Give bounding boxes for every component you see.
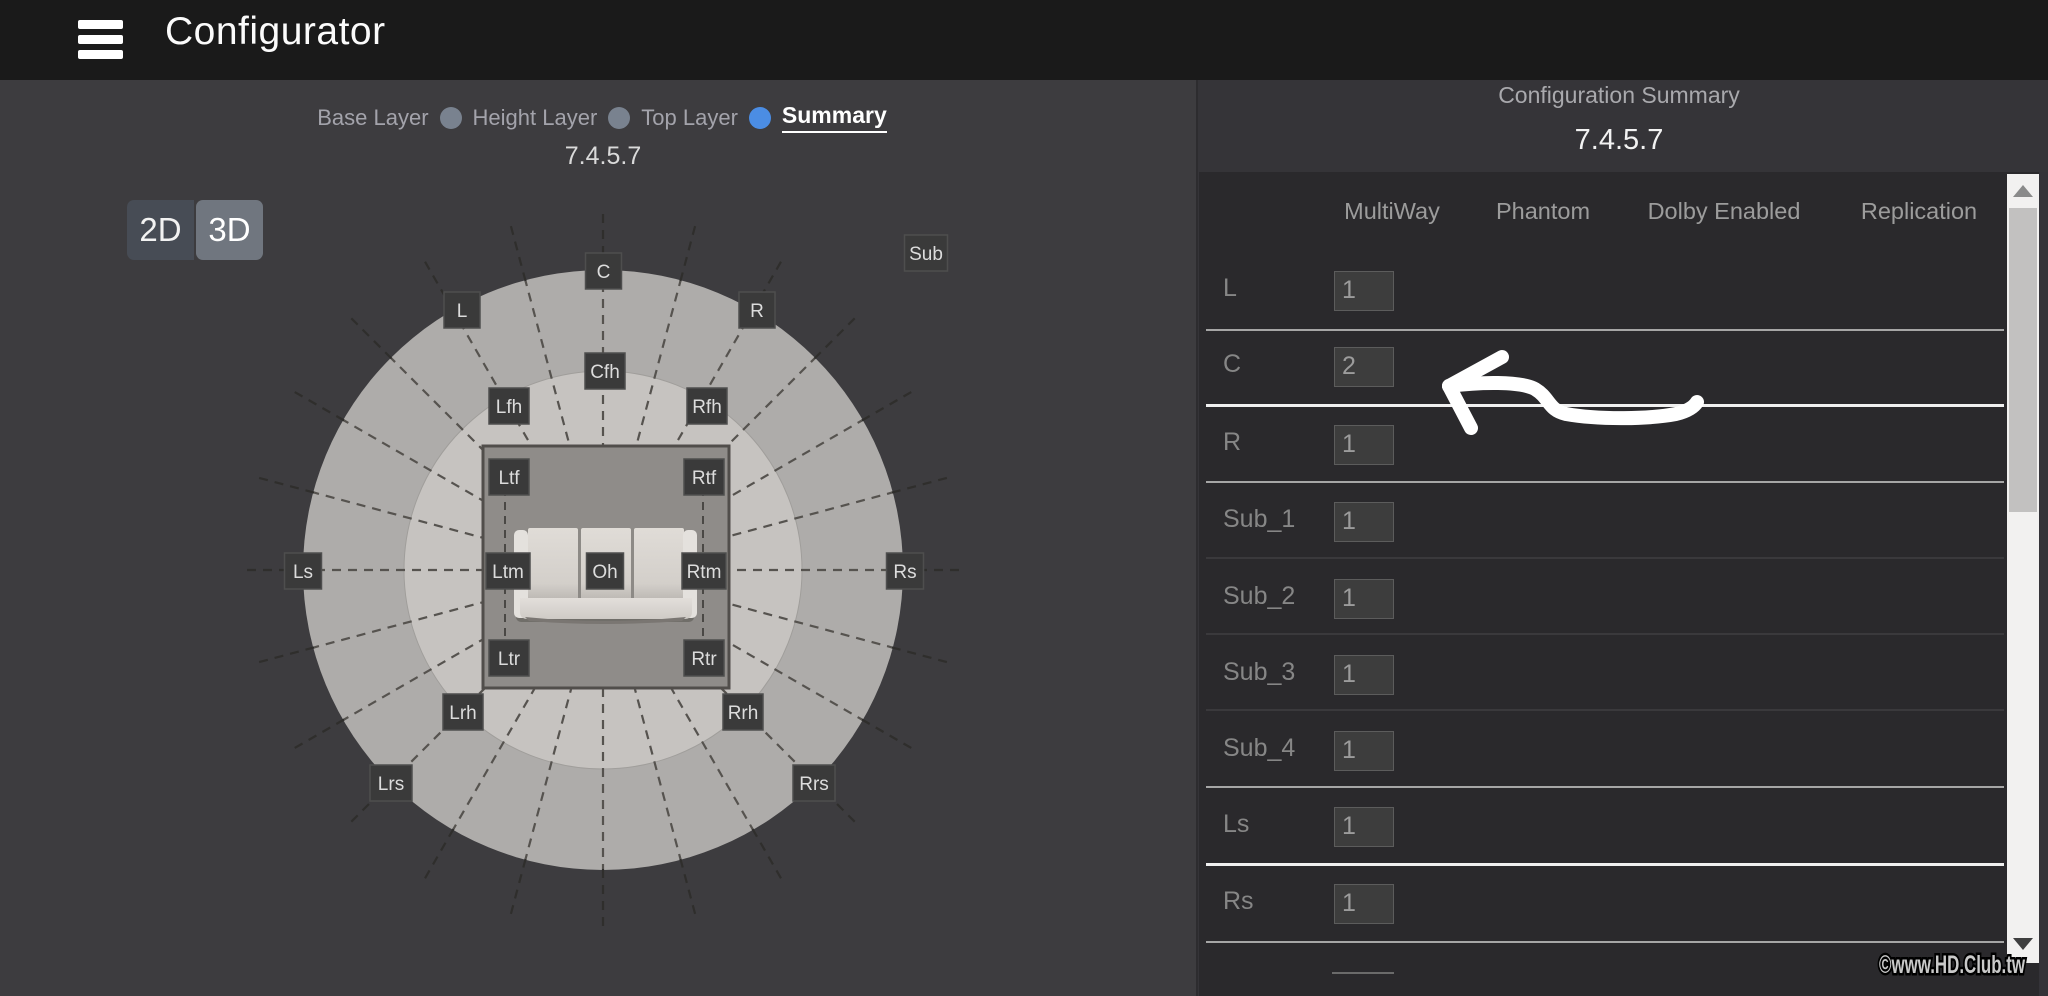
svg-text:©www.HD.Club.tw: ©www.HD.Club.tw: [1879, 951, 2025, 979]
svg-text:Ltr: Ltr: [498, 649, 521, 670]
svg-text:Ltm: Ltm: [492, 562, 524, 583]
svg-text:Lrs: Lrs: [378, 774, 404, 795]
svg-text:Sub: Sub: [909, 244, 943, 265]
svg-text:Rtf: Rtf: [692, 468, 717, 489]
svg-text:Ls: Ls: [293, 562, 313, 583]
svg-text:Rfh: Rfh: [692, 397, 722, 418]
svg-text:R: R: [750, 301, 764, 322]
svg-text:Oh: Oh: [592, 562, 617, 583]
svg-text:Rrs: Rrs: [799, 774, 829, 795]
svg-text:Ltf: Ltf: [498, 468, 520, 489]
svg-text:Rrh: Rrh: [728, 703, 759, 724]
svg-text:Cfh: Cfh: [590, 362, 620, 383]
svg-text:Rtm: Rtm: [687, 562, 722, 583]
svg-text:Rs: Rs: [893, 562, 916, 583]
svg-text:Lrh: Lrh: [449, 703, 476, 724]
svg-text:L: L: [457, 301, 468, 322]
svg-text:Rtr: Rtr: [691, 649, 717, 670]
svg-text:Lfh: Lfh: [496, 397, 522, 418]
svg-text:C: C: [597, 262, 611, 283]
